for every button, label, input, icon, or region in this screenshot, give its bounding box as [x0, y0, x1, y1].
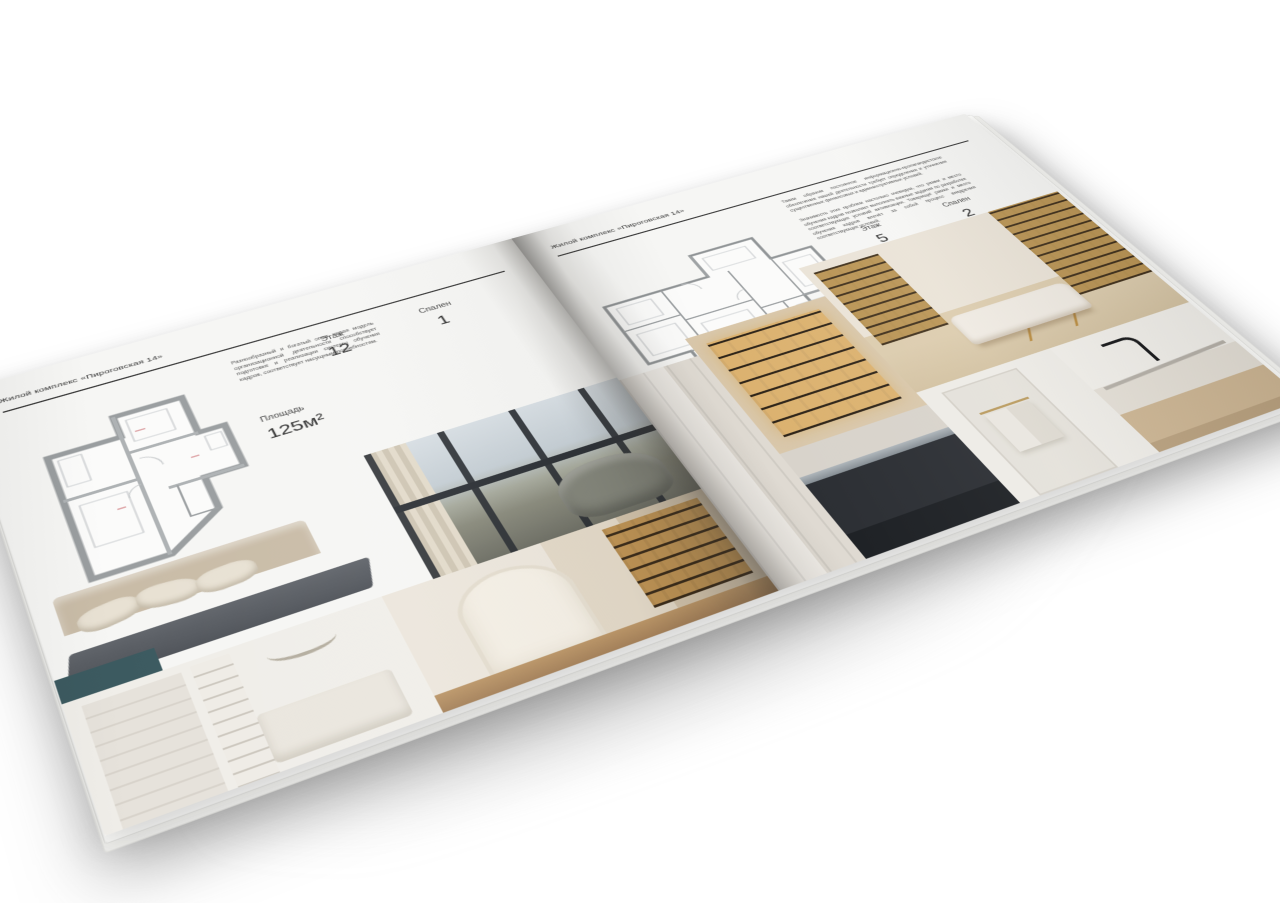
window-beam: [392, 425, 656, 515]
area-label: Площадь: [259, 401, 318, 424]
right-page-title: Жилой комплекс «Пироговская 14»: [549, 208, 687, 250]
teal-bench: [54, 647, 163, 704]
floor-plan-125: [4, 367, 298, 600]
window-mullions: [363, 378, 701, 580]
black-faucet: [1100, 334, 1160, 370]
left-page-header: Жилой комплекс «Пироговская 14»: [0, 257, 505, 412]
white-chaise: [947, 281, 1094, 346]
steel-trim: [799, 427, 955, 485]
towel: [985, 400, 1065, 452]
bed-headboard: [52, 519, 320, 636]
backdrop: Жилой комплекс «Пироговская 14»: [0, 0, 1280, 835]
bedrooms-stat-left: Спален 1: [401, 296, 481, 336]
area-stat-left: Площадь 125м²: [259, 401, 329, 443]
pillow: [73, 591, 147, 637]
curtain: [363, 443, 478, 579]
left-page-title: Жилой комплекс «Пироговская 14»: [0, 353, 164, 405]
wall-garland: [263, 624, 341, 667]
pillow: [192, 555, 263, 598]
pillow: [134, 574, 203, 613]
shelf-column: [190, 653, 280, 787]
area-value: 125м²: [264, 411, 328, 443]
armchair: [546, 443, 683, 524]
photo-living-room-window: [363, 378, 701, 580]
bed-blanket: [68, 557, 373, 689]
towel-bar: [979, 396, 1030, 414]
header-rule: [3, 271, 505, 413]
